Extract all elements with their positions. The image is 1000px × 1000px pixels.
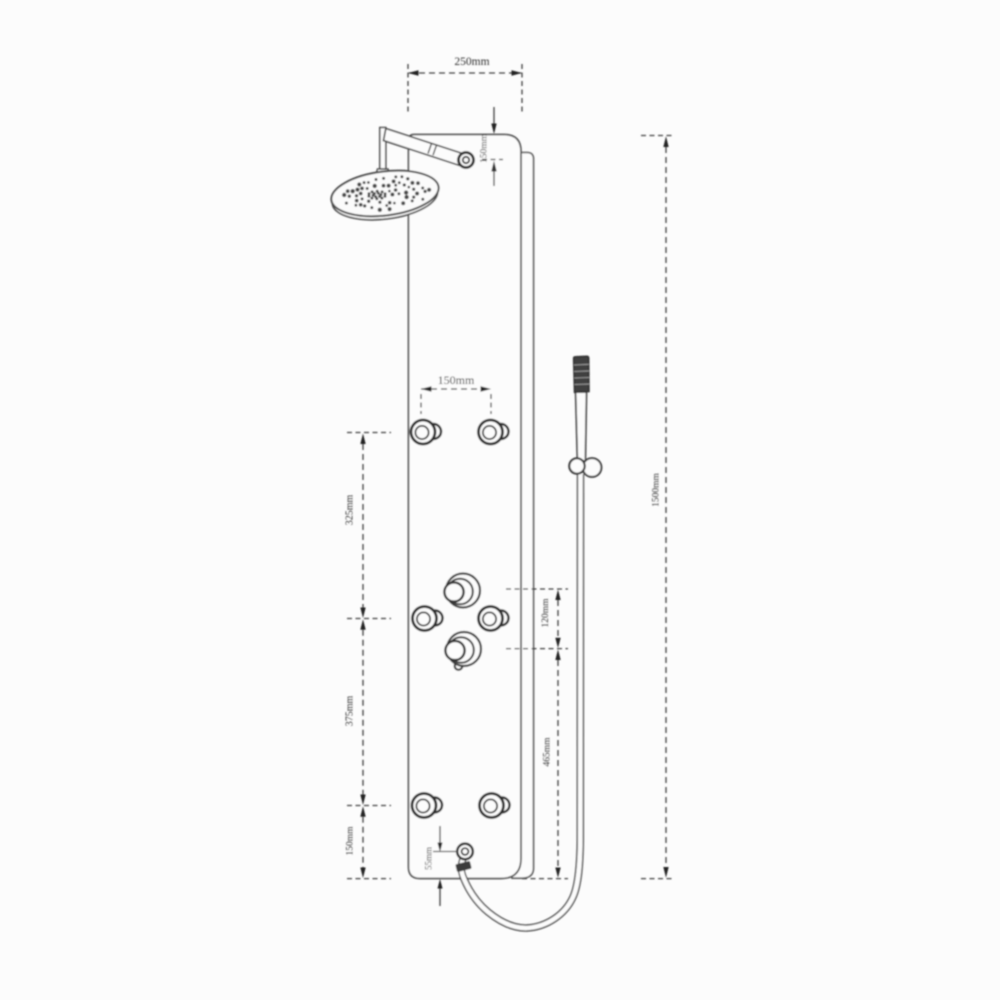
svg-text:150mm: 150mm [346,826,356,856]
svg-text:150mm: 150mm [438,373,475,387]
svg-text:375mm: 375mm [345,696,356,727]
svg-text:325mm: 325mm [345,495,356,526]
svg-text:150mm: 150mm [480,133,490,163]
svg-text:250mm: 250mm [454,56,489,68]
svg-text:120mm: 120mm [541,598,551,628]
svg-text:55mm: 55mm [424,847,434,870]
svg-text:465mm: 465mm [543,737,553,767]
svg-text:1500mm: 1500mm [652,473,662,507]
